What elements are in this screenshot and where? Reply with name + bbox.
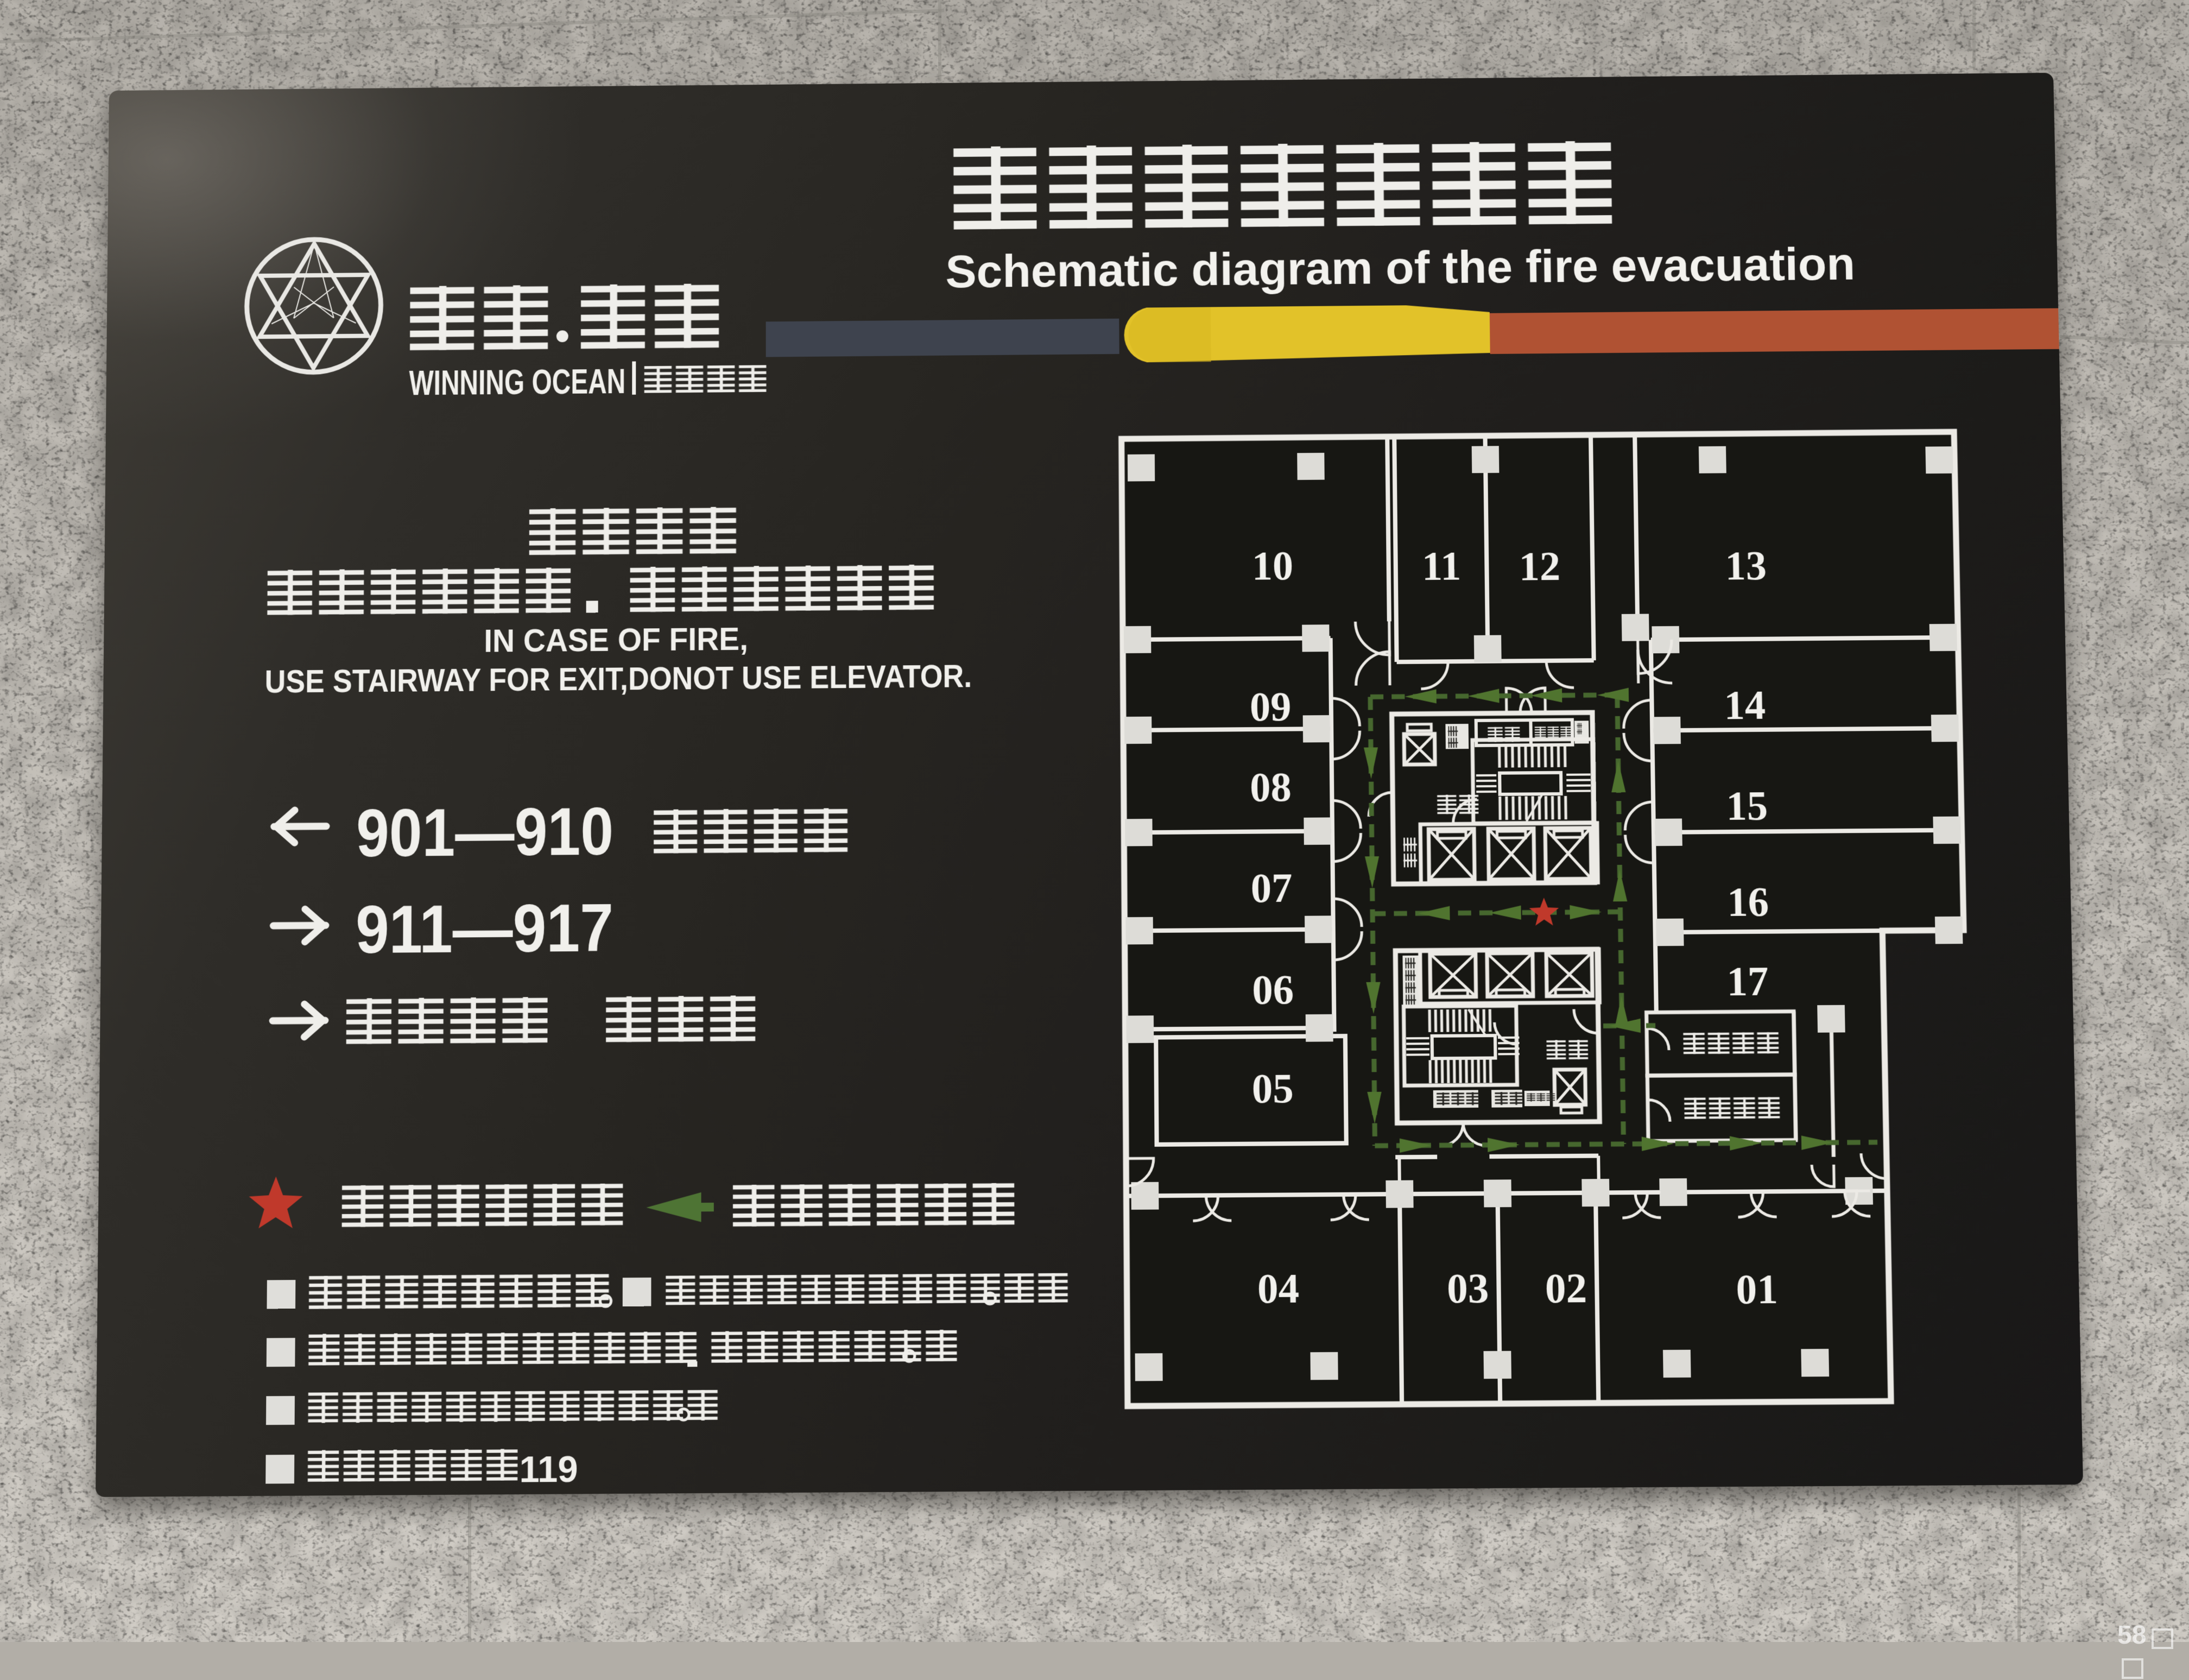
svg-text:14: 14 bbox=[1724, 683, 1766, 729]
svg-text:09: 09 bbox=[1250, 684, 1292, 730]
svg-text:11: 11 bbox=[1422, 544, 1462, 590]
svg-text:911—917: 911—917 bbox=[356, 890, 613, 968]
svg-text:Schematic diagram of the fire: Schematic diagram of the fire evacuation bbox=[945, 237, 1855, 297]
svg-text:USE STAIRWAY FOR EXIT,DONOT US: USE STAIRWAY FOR EXIT,DONOT USE ELEVATOR… bbox=[264, 659, 972, 700]
svg-text:WINNING OCEAN: WINNING OCEAN bbox=[409, 363, 625, 403]
svg-text:IN CASE OF FIRE,: IN CASE OF FIRE, bbox=[484, 621, 748, 659]
svg-text:05: 05 bbox=[1251, 1065, 1294, 1112]
svg-text:12: 12 bbox=[1519, 544, 1560, 590]
svg-text:17: 17 bbox=[1726, 958, 1769, 1005]
svg-text:119: 119 bbox=[520, 1449, 578, 1490]
svg-text:07: 07 bbox=[1250, 865, 1292, 911]
svg-text:13: 13 bbox=[1725, 543, 1767, 589]
svg-text:15: 15 bbox=[1726, 783, 1768, 829]
svg-text:03: 03 bbox=[1447, 1265, 1489, 1312]
svg-text:901—910: 901—910 bbox=[356, 794, 613, 871]
svg-text:04: 04 bbox=[1257, 1265, 1300, 1312]
svg-text:06: 06 bbox=[1252, 967, 1294, 1013]
svg-text:16: 16 bbox=[1727, 879, 1769, 926]
svg-text:10: 10 bbox=[1252, 543, 1294, 589]
svg-text:01: 01 bbox=[1736, 1266, 1779, 1313]
svg-text:02: 02 bbox=[1545, 1265, 1587, 1312]
svg-text:08: 08 bbox=[1250, 765, 1292, 811]
